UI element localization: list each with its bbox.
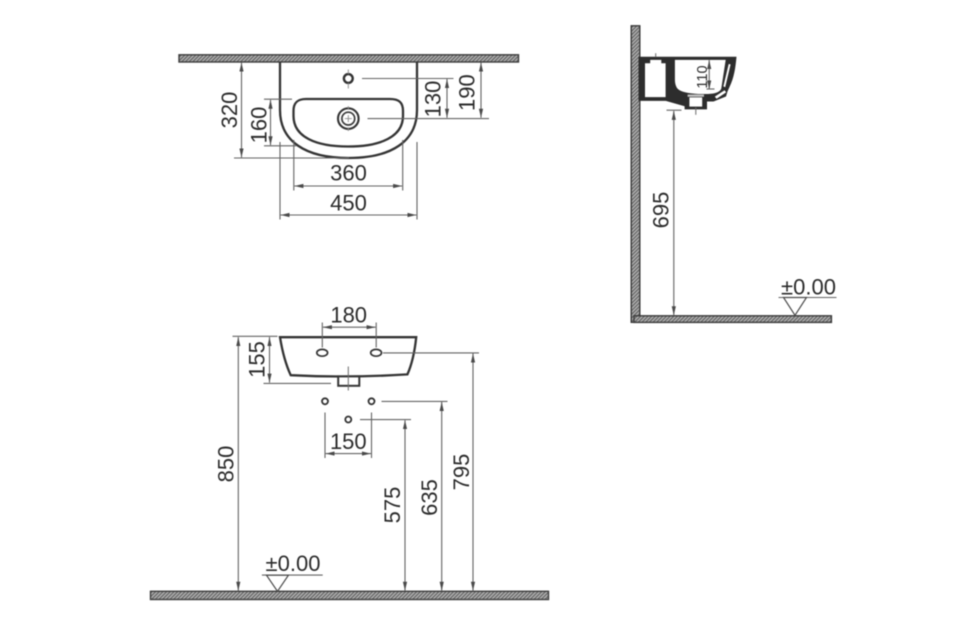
svg-text:190: 190 [455,74,480,111]
svg-text:795: 795 [449,454,474,491]
svg-text:635: 635 [417,479,442,516]
svg-text:130: 130 [420,81,445,118]
svg-text:180: 180 [330,302,367,327]
svg-text:360: 360 [330,161,367,186]
svg-text:850: 850 [214,446,239,483]
svg-text:160: 160 [247,107,272,144]
svg-text:±0.00: ±0.00 [781,275,836,300]
svg-text:450: 450 [330,191,367,216]
svg-text:110: 110 [695,65,711,88]
svg-text:695: 695 [649,192,674,229]
svg-text:±0.00: ±0.00 [266,551,321,576]
svg-text:575: 575 [380,487,405,524]
svg-text:155: 155 [244,341,269,378]
svg-text:320: 320 [217,92,242,129]
svg-text:150: 150 [330,429,367,454]
